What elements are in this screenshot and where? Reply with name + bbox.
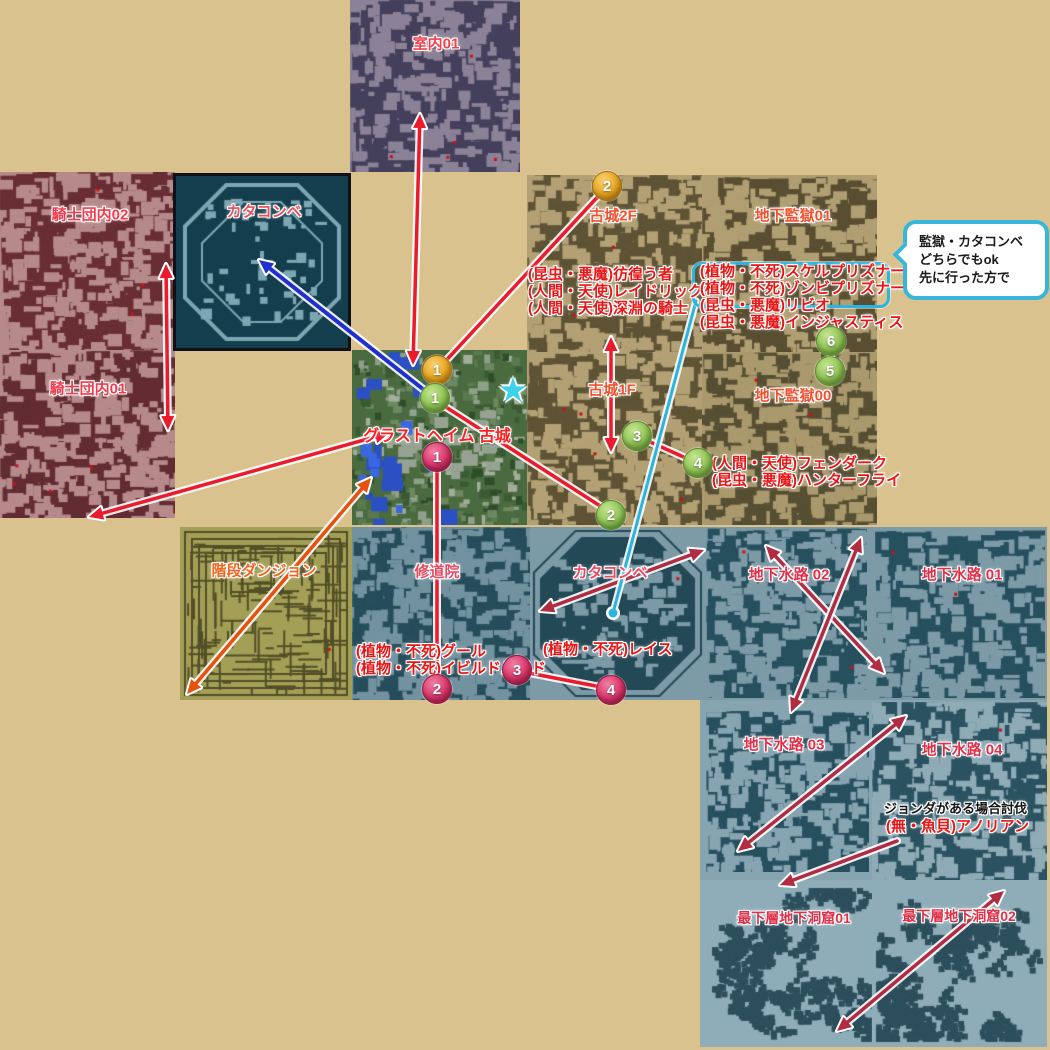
- speech-bubble-line: どちらでもok: [919, 251, 1035, 269]
- note-line: (植物・不死)レイス: [543, 641, 673, 658]
- underprison-00-monsters: (人間・天使)フェンダーク(昆虫・悪魔)ハンターフライ: [712, 455, 901, 489]
- route-green-4: 4: [683, 448, 713, 478]
- tile-label-castle-1f: 古城1F: [588, 379, 636, 400]
- route-pink-2: 2: [422, 674, 452, 704]
- note-line: (人間・天使)フェンダーク: [712, 455, 901, 472]
- tile-sewer-04: [872, 702, 1047, 880]
- tile-label-room-interior-01: 室内01: [413, 33, 460, 54]
- tile-sewer-01: [875, 530, 1045, 698]
- tile-stairs-dungeon: [180, 527, 352, 700]
- route-green-1: 1: [420, 383, 450, 413]
- route-green-5: 5: [815, 356, 845, 386]
- jonda-note: ジョンダがある場合討伐: [884, 800, 1027, 817]
- tile-label-monastery: 修道院: [414, 561, 459, 582]
- route-green-3: 3: [622, 421, 652, 451]
- note-line: (無・魚貝)アノリアン: [886, 818, 1029, 835]
- route-orange-1: 1: [422, 355, 452, 385]
- tile-label-catacomb-upper: カタコンベ: [226, 201, 301, 222]
- note-line: (昆虫・悪魔)彷徨う者: [528, 266, 703, 283]
- route-orange-2: 2: [592, 171, 622, 201]
- route-pink-4: 4: [596, 675, 626, 705]
- tile-knights-hall-02: [0, 172, 175, 350]
- note-line: (昆虫・悪魔)リビオ: [700, 297, 905, 314]
- tile-underprison-00: [702, 352, 877, 525]
- tile-sewer-02: [705, 528, 867, 698]
- tile-label-knights-hall-01: 騎士団内01: [50, 378, 127, 399]
- speech-bubble-line: 先に行った方で: [919, 269, 1035, 287]
- note-line: (人間・天使)レイドリック: [528, 283, 703, 300]
- anolian-note: (無・魚貝)アノリアン: [886, 818, 1029, 835]
- tile-label-lowest-cave-01: 最下層地下洞窟01: [737, 908, 851, 928]
- note-line: (昆虫・悪魔)ハンターフライ: [712, 472, 901, 489]
- underprison-01-monsters: (植物・不死)スケルプリズナー(植物・不死)ゾンビプリズナー(昆虫・悪魔)リビオ…: [700, 263, 905, 331]
- route-pink-1: 1: [422, 442, 452, 472]
- start-point-star: ★: [498, 370, 528, 410]
- tile-knights-hall-01: [0, 350, 175, 518]
- tile-label-stairs-dungeon: 階段ダンジョン: [211, 560, 316, 581]
- tile-label-underprison-00: 地下監獄00: [755, 385, 832, 406]
- tile-room-interior-01: [350, 0, 520, 172]
- tile-castle-2f: [527, 175, 702, 352]
- note-line: (昆虫・悪魔)インジャスティス: [700, 314, 905, 331]
- castle-2f-monsters: (昆虫・悪魔)彷徨う者(人間・天使)レイドリック(人間・天使)深淵の騎士: [528, 266, 703, 317]
- note-line: (植物・不死)スケルプリズナー: [700, 263, 905, 280]
- tile-label-underprison-01: 地下監獄01: [755, 205, 832, 226]
- tile-label-castle-2f: 古城2F: [589, 205, 637, 226]
- tile-label-sewer-02: 地下水路 02: [749, 564, 830, 585]
- tile-catacomb-lower: [530, 527, 705, 700]
- route-green-2: 2: [596, 500, 626, 530]
- speech-bubble: 監獄・カタコンベ どちらでもok 先に行った方で: [903, 220, 1049, 300]
- glast-heim-dungeon-map-guide: 室内01騎士団内02騎士団内01カタコンベ古城2F地下監獄01古城1F地下監獄0…: [0, 0, 1050, 1050]
- route-pink-3: 3: [502, 655, 532, 685]
- tile-label-lowest-cave-02: 最下層地下洞窟02: [902, 906, 1016, 926]
- route-green-6: 6: [816, 326, 846, 356]
- tile-label-sewer-04: 地下水路 04: [922, 739, 1003, 760]
- note-line: ジョンダがある場合討伐: [884, 800, 1027, 817]
- catacomb-monsters: (植物・不死)レイス: [543, 641, 673, 658]
- note-line: (植物・不死)ゾンビプリズナー: [700, 280, 905, 297]
- tile-label-sewer-03: 地下水路 03: [744, 734, 825, 755]
- speech-bubble-line: 監獄・カタコンベ: [919, 233, 1035, 251]
- note-line: (人間・天使)深淵の騎士: [528, 300, 703, 317]
- tile-label-catacomb-lower: カタコンベ: [572, 562, 647, 583]
- tile-label-sewer-01: 地下水路 01: [922, 564, 1003, 585]
- tile-label-knights-hall-02: 騎士団内02: [52, 204, 129, 225]
